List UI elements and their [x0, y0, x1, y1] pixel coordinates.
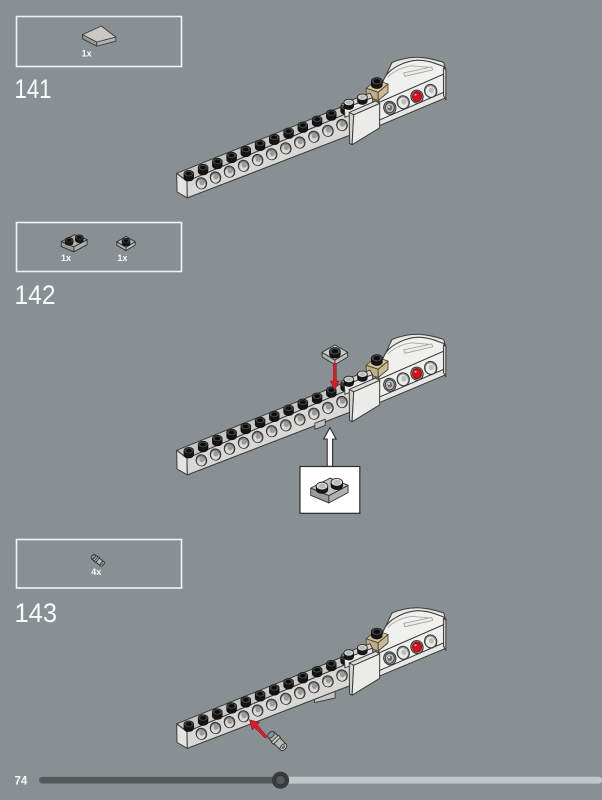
svg-text:1x: 1x	[117, 253, 127, 263]
svg-text:74: 74	[15, 775, 28, 787]
svg-text:142: 142	[15, 280, 56, 310]
svg-text:4x: 4x	[91, 567, 101, 577]
svg-text:141: 141	[15, 74, 52, 104]
svg-text:1x: 1x	[61, 253, 71, 263]
svg-text:143: 143	[15, 598, 58, 628]
svg-text:1x: 1x	[82, 48, 92, 58]
